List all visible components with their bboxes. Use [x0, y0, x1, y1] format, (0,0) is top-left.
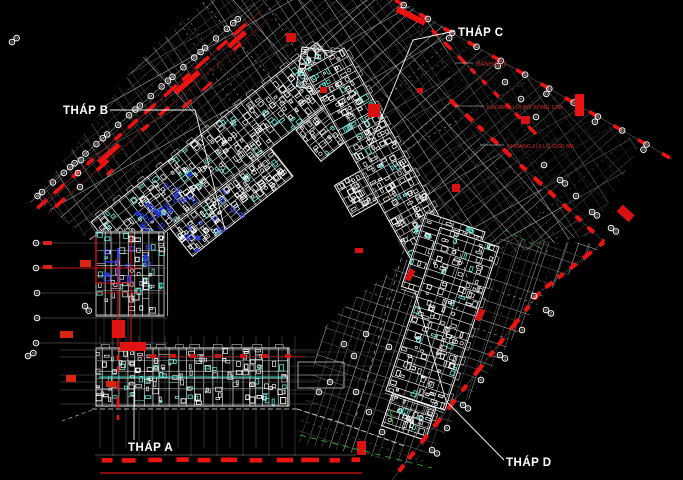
svg-text:THÁP A: THÁP A [128, 441, 173, 454]
svg-text:THÁP B: THÁP B [63, 104, 109, 117]
svg-text:KHOẢNG LÙI BỜ SÔNG 10M: KHOẢNG LÙI BỜ SÔNG 10M [487, 104, 562, 111]
svg-text:RANH ĐẤT: RANH ĐẤT [476, 61, 507, 68]
svg-text:KHOẢNG LÙI LỘ GIỚI 6M: KHOẢNG LÙI LỘ GIỚI 6M [507, 143, 574, 150]
svg-text:THÁP D: THÁP D [506, 456, 552, 469]
svg-text:THÁP C: THÁP C [458, 26, 504, 39]
